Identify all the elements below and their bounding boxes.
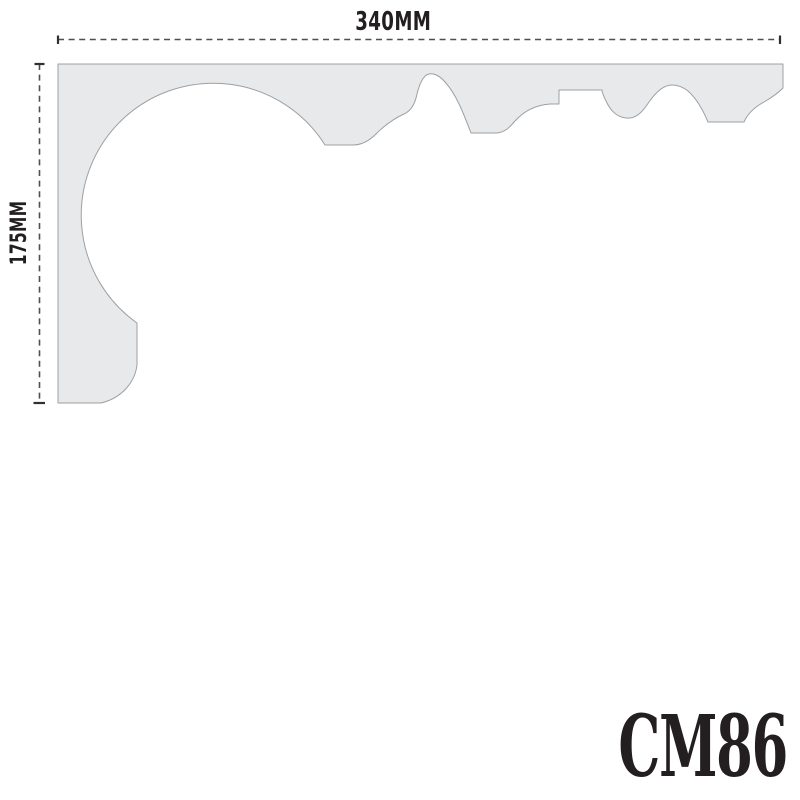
height-dimension-label: 175MM — [8, 163, 32, 303]
molding-profile-shape — [58, 64, 783, 403]
height-dimension-text: 175MM — [8, 201, 32, 266]
product-code: CM86 — [618, 705, 787, 790]
coving-profile-drawing: 340MM 175MM CM86 — [0, 0, 800, 800]
drawing-canvas — [0, 0, 800, 800]
width-dimension-label: 340MM — [0, 9, 786, 35]
width-dimension-text: 340MM — [355, 9, 431, 35]
height-dimension-line — [34, 64, 46, 403]
